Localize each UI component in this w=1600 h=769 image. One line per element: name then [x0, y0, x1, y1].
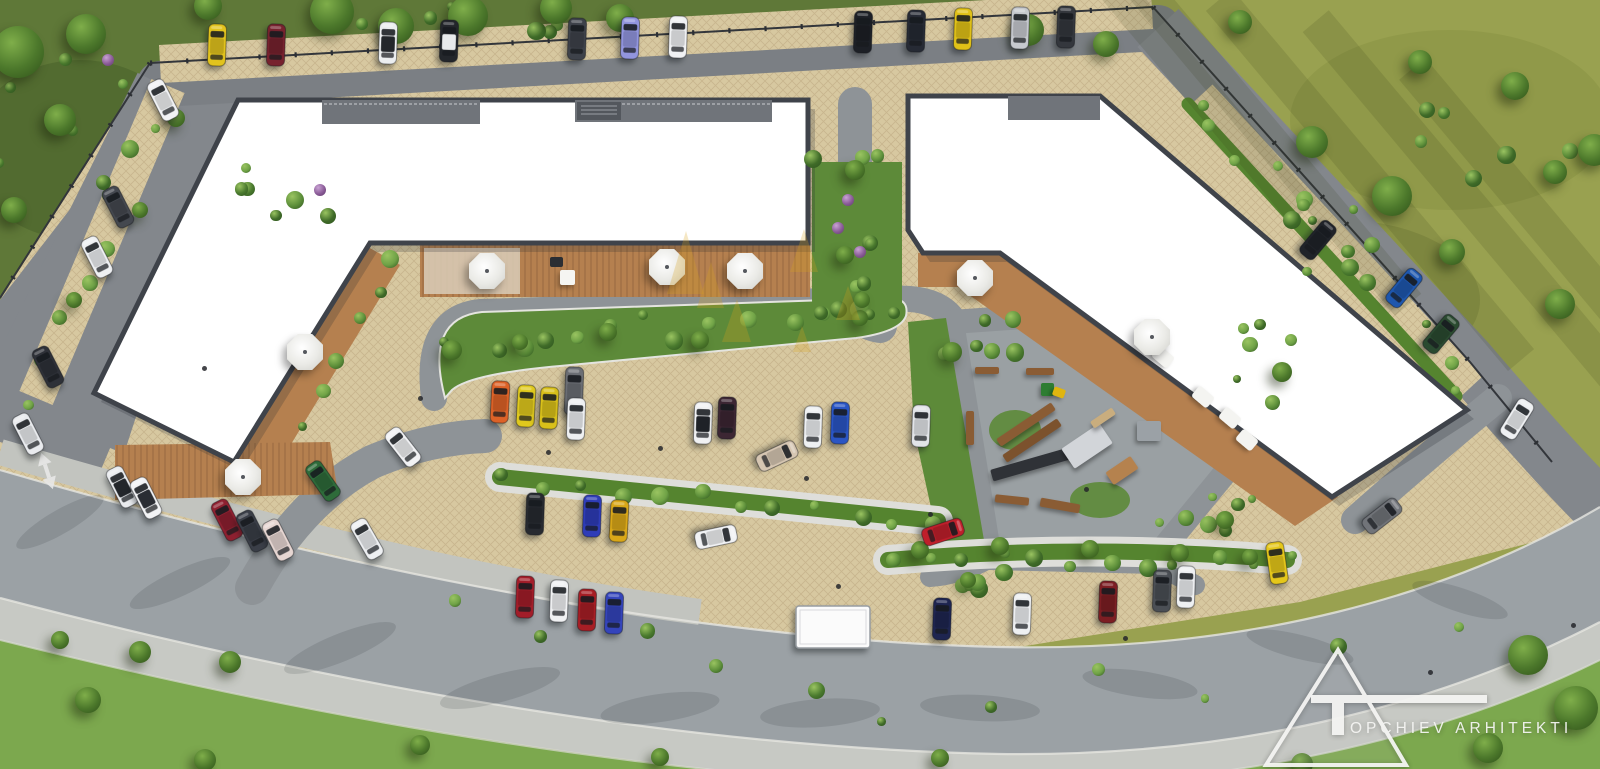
tree-shadow [11, 487, 110, 558]
architect-logo: OPCHIEV ARHITEKTI [1254, 638, 1600, 769]
playground-equipment [1040, 497, 1081, 513]
tree [51, 631, 69, 649]
tree [991, 537, 1009, 555]
car [1415, 306, 1467, 361]
bush [1285, 334, 1297, 346]
tree [75, 687, 101, 713]
bush [1497, 146, 1516, 165]
bush [665, 331, 684, 350]
tree [1081, 540, 1099, 558]
tree [410, 735, 430, 755]
bush [804, 150, 822, 168]
car [562, 394, 590, 445]
flower-bush [854, 246, 866, 258]
bush [695, 484, 711, 500]
tree [1501, 72, 1529, 100]
car [689, 519, 743, 555]
bollard [1084, 487, 1089, 492]
tree-shadow [279, 613, 401, 684]
bush [810, 501, 819, 510]
tree [1439, 239, 1465, 265]
bush [926, 553, 936, 563]
bush [1006, 343, 1024, 361]
bush [1200, 516, 1217, 533]
car [374, 18, 402, 69]
bush [640, 623, 655, 638]
bush [1208, 493, 1216, 501]
bush [886, 519, 897, 530]
flower-bush [314, 184, 326, 196]
bush [328, 353, 344, 369]
tree [942, 342, 962, 362]
tree [599, 323, 617, 341]
bush [492, 343, 507, 358]
car [664, 12, 692, 63]
bollard [202, 366, 207, 371]
tree-shadow [1409, 573, 1512, 627]
tree [1272, 362, 1292, 382]
umbrella-canopy [287, 334, 323, 370]
bush [1465, 170, 1482, 187]
logo-text: OPCHIEV ARHITEKTI [1350, 720, 1572, 737]
flower-bush [842, 194, 854, 206]
tree [1545, 289, 1575, 319]
flower-bush [102, 54, 114, 66]
bush [286, 191, 304, 209]
bush [534, 630, 547, 643]
car [616, 13, 644, 64]
umbrella-canopy [1134, 319, 1170, 355]
tree [1578, 134, 1600, 166]
playground-equipment [1026, 368, 1054, 375]
bush [316, 384, 331, 399]
playground-equipment [1105, 455, 1138, 484]
bush [381, 250, 399, 268]
car [605, 495, 634, 546]
bollard [658, 446, 663, 451]
bush [1283, 211, 1301, 229]
bush [709, 659, 723, 673]
patio-umbrella [225, 459, 261, 495]
logo-t-bar [1311, 695, 1487, 703]
bush [527, 22, 546, 41]
bollard [1123, 636, 1128, 641]
tree [44, 104, 76, 136]
car [203, 20, 231, 71]
playground-equipment [975, 367, 999, 374]
tree [651, 748, 669, 766]
bush [1104, 555, 1121, 572]
logo-t-stem [1332, 703, 1344, 735]
bollard [1571, 623, 1576, 628]
bush [1233, 375, 1241, 383]
bush [52, 310, 67, 325]
bush [1302, 267, 1312, 277]
tree [1242, 549, 1258, 565]
bush [970, 340, 982, 352]
tree [194, 749, 216, 769]
tree [310, 0, 354, 34]
tree-shadow [436, 658, 563, 717]
bush [1242, 337, 1258, 353]
bollard [546, 450, 551, 455]
bush [1005, 311, 1021, 327]
car [1052, 2, 1080, 53]
bush [886, 553, 901, 568]
bush [270, 210, 282, 222]
bush [1229, 155, 1240, 166]
bush [1341, 259, 1358, 276]
tree [852, 310, 868, 326]
car [928, 594, 956, 645]
bush [1178, 510, 1194, 526]
car [902, 6, 930, 57]
umbrella-canopy [957, 260, 993, 296]
tree [66, 292, 82, 308]
bush [735, 501, 747, 513]
bush [1213, 550, 1227, 564]
bush [1025, 549, 1043, 567]
tree [931, 749, 949, 767]
bush [1238, 323, 1249, 334]
bush [984, 343, 1000, 359]
bush [808, 682, 825, 699]
bush [702, 317, 715, 330]
bush [1297, 199, 1310, 212]
bush [764, 500, 780, 516]
tree [1543, 160, 1567, 184]
car [573, 585, 601, 636]
bush [1359, 274, 1376, 291]
car [849, 7, 877, 58]
bollard [836, 584, 841, 589]
umbrella-canopy [649, 249, 685, 285]
bush [1562, 143, 1578, 159]
bush [121, 140, 139, 158]
umbrella-canopy [469, 253, 505, 289]
bush [638, 310, 648, 320]
bush [449, 594, 461, 606]
bbq-grill [550, 257, 563, 267]
patio-umbrella [649, 249, 685, 285]
tree-shadow [599, 686, 722, 730]
bush [575, 480, 586, 491]
bush [354, 312, 366, 324]
bollard [928, 512, 933, 517]
bush [1364, 237, 1380, 253]
car [907, 401, 935, 452]
bush [424, 11, 437, 24]
car [521, 489, 549, 540]
car [535, 382, 564, 433]
bush [1265, 395, 1280, 410]
tree [194, 0, 222, 20]
car [1354, 490, 1409, 541]
patio-umbrella [287, 334, 323, 370]
bush [298, 422, 307, 431]
bush [1445, 356, 1459, 370]
car [749, 434, 805, 479]
bush [1451, 386, 1460, 395]
car [1172, 562, 1200, 613]
car [1008, 589, 1036, 640]
tree [129, 641, 151, 663]
playground-equipment [995, 494, 1030, 506]
patio-umbrella [1134, 319, 1170, 355]
car [826, 398, 854, 449]
bush [356, 18, 368, 30]
flower-bush [832, 222, 844, 234]
playground-equipment [1137, 421, 1161, 441]
tree [836, 246, 854, 264]
bush [985, 701, 997, 713]
bush [1273, 161, 1283, 171]
bush [1254, 319, 1265, 330]
car [25, 339, 71, 395]
car [1006, 3, 1034, 54]
tree [1093, 31, 1119, 57]
tree-shadow [1206, 0, 1534, 371]
tree [219, 651, 241, 673]
car [5, 406, 51, 462]
car [486, 376, 515, 427]
bush [857, 276, 872, 291]
umbrella-canopy [225, 459, 261, 495]
car [1094, 577, 1122, 628]
tree-shadow [919, 692, 1040, 724]
site-plan-rendering: OPCHIEV ARHITEKTI [0, 0, 1600, 769]
playground-equipment [1052, 386, 1066, 399]
bush [814, 306, 828, 320]
car [262, 20, 290, 71]
bush [375, 287, 387, 299]
bush [1454, 622, 1464, 632]
tree [1216, 511, 1234, 529]
car [511, 572, 539, 623]
bush [1155, 518, 1164, 527]
car [578, 491, 606, 542]
patio-umbrella [469, 253, 505, 289]
car [949, 4, 977, 55]
car [713, 393, 741, 444]
tree [1228, 10, 1252, 34]
bush [151, 124, 160, 133]
car [600, 588, 628, 639]
bush [1064, 561, 1075, 572]
car [435, 16, 463, 67]
car [343, 511, 391, 567]
bush [877, 717, 886, 726]
tree [1171, 544, 1189, 562]
bush [1415, 135, 1428, 148]
bush [995, 564, 1013, 582]
tree [1408, 50, 1432, 74]
bush [1231, 498, 1245, 512]
bush [1248, 495, 1256, 503]
tree [845, 160, 865, 180]
car [74, 229, 120, 285]
bush [871, 149, 885, 163]
tree [691, 331, 709, 349]
outdoor-sofa [1218, 406, 1242, 430]
tree [66, 14, 106, 54]
bush [740, 311, 757, 328]
car [799, 402, 827, 453]
car [140, 72, 186, 128]
bollard [804, 476, 809, 481]
outdoor-sofa [1191, 385, 1215, 409]
bush [1349, 205, 1358, 214]
tree [1, 197, 27, 223]
bush [571, 331, 584, 344]
bush [1201, 694, 1210, 703]
bush [537, 332, 554, 349]
tree [442, 340, 462, 360]
bush [888, 307, 900, 319]
playground-equipment [966, 411, 974, 445]
patio-table [560, 270, 575, 285]
car [563, 14, 591, 65]
bollard [418, 396, 423, 401]
bush [235, 182, 248, 195]
bush [979, 314, 992, 327]
bush [830, 301, 847, 318]
bush [787, 314, 804, 331]
bush [494, 468, 507, 481]
car [1261, 536, 1294, 589]
patio-umbrella [727, 253, 763, 289]
bush [1198, 100, 1209, 111]
bush [954, 553, 968, 567]
car [298, 453, 348, 509]
bush [865, 238, 876, 249]
tree [960, 572, 976, 588]
bush [241, 163, 251, 173]
tree [1296, 126, 1328, 158]
car [1493, 391, 1542, 447]
bush [320, 208, 336, 224]
delivery-truck [792, 602, 874, 652]
playground-equipment [1090, 407, 1116, 428]
tree-shadow [125, 548, 236, 618]
tree-shadow [759, 695, 881, 731]
tree [854, 292, 870, 308]
tree [1372, 176, 1412, 216]
tree [0, 26, 44, 78]
outdoor-sofa [1235, 428, 1259, 452]
bush [651, 487, 669, 505]
umbrella-canopy [727, 253, 763, 289]
bush [1341, 245, 1355, 259]
bush [118, 79, 128, 89]
car [915, 512, 971, 552]
playground-equipment [1061, 423, 1113, 469]
patio-umbrella [957, 260, 993, 296]
bush [0, 158, 4, 168]
car [545, 576, 573, 627]
bush [5, 82, 16, 93]
bush [59, 53, 72, 66]
car [377, 419, 428, 474]
bush [855, 509, 872, 526]
tree [512, 334, 528, 350]
